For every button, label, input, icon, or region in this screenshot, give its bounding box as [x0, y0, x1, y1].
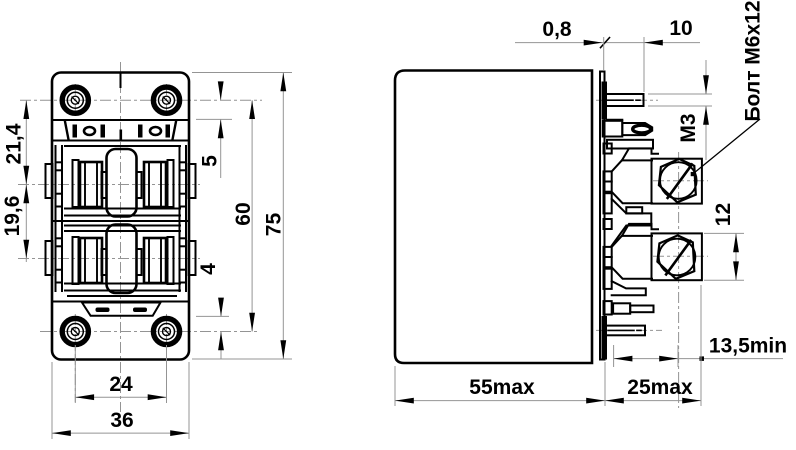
- svg-text:75: 75: [263, 213, 286, 237]
- svg-text:10: 10: [669, 17, 692, 40]
- svg-text:Болт М6х12: Болт М6х12: [742, 0, 765, 121]
- svg-text:0,8: 0,8: [542, 18, 572, 41]
- svg-text:4: 4: [197, 263, 220, 275]
- svg-text:5: 5: [199, 155, 222, 167]
- svg-text:21,4: 21,4: [3, 123, 26, 164]
- svg-text:55max: 55max: [469, 376, 535, 399]
- svg-text:60: 60: [232, 202, 255, 225]
- svg-text:25max: 25max: [627, 376, 693, 399]
- svg-text:24: 24: [109, 373, 133, 396]
- svg-text:19,6: 19,6: [1, 196, 24, 237]
- svg-text:13,5min: 13,5min: [709, 335, 787, 358]
- svg-text:36: 36: [110, 409, 133, 432]
- svg-text:12: 12: [712, 203, 735, 226]
- svg-text:М3: М3: [677, 113, 700, 142]
